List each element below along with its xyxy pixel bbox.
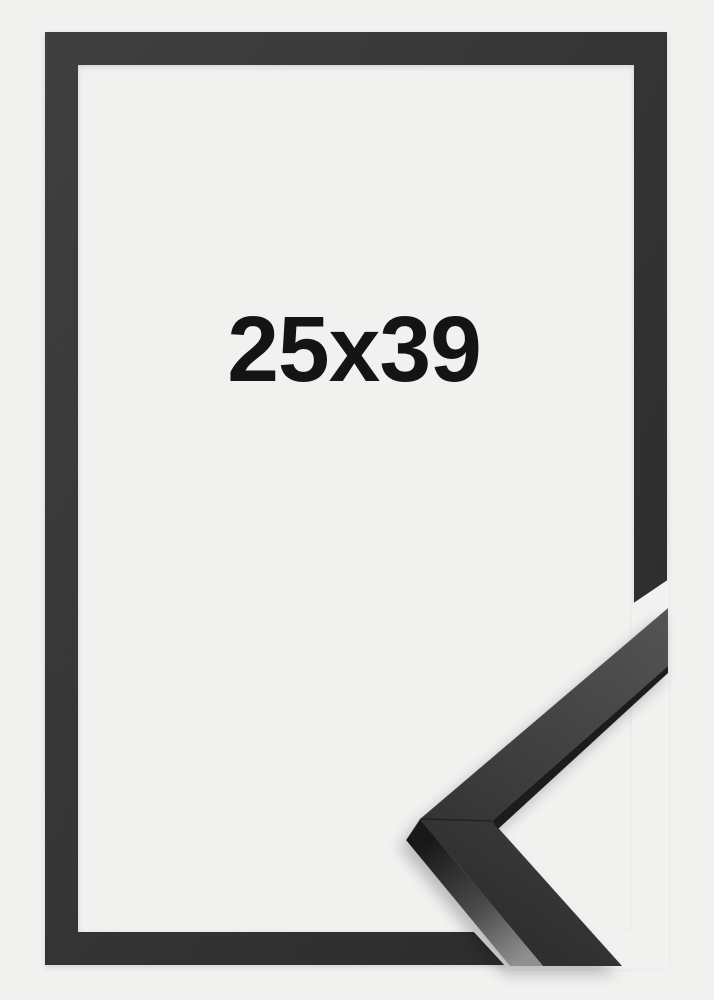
product-photo: 25x39 xyxy=(0,0,714,1000)
frame-illustration: 25x39 xyxy=(0,0,714,1000)
size-label: 25x39 xyxy=(227,297,481,401)
studio-background xyxy=(0,0,714,1000)
